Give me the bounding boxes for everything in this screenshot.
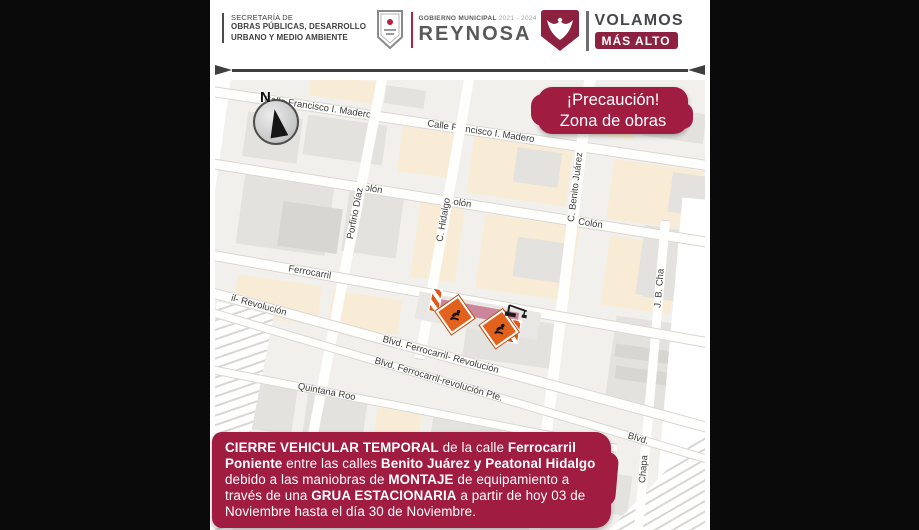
secretaria-title: SECRETARÍA DE OBRAS PÚBLICAS, DESARROLLO… [222, 13, 366, 43]
compass-needle-icon [266, 108, 289, 139]
secretaria-line2: OBRAS PÚBLICAS, DESARROLLO [231, 22, 366, 33]
bird-shield-icon [540, 8, 580, 54]
announcement-card: SECRETARÍA DE OBRAS PÚBLICAS, DESARROLLO… [210, 0, 710, 530]
volamos-logo: VOLAMOS MÁS ALTO [540, 8, 684, 54]
precaution-badge: ¡Precaución! Zona de obras [538, 87, 688, 134]
municipal-shield-icon [375, 9, 405, 51]
closure-notice-banner: CIERRE VEHICULAR TEMPORAL de la calle Fe… [212, 432, 611, 528]
secretaria-line1: SECRETARÍA DE [231, 13, 366, 22]
separator-bar [232, 69, 688, 72]
logo-divider-2 [586, 11, 589, 51]
precaution-line2: Zona de obras [538, 111, 688, 132]
separator-right-cap [688, 65, 705, 75]
map-building [513, 147, 562, 188]
slogan-mas-alto: MÁS ALTO [595, 32, 678, 49]
gobierno-municipal-label: GOBIERNO MUNICIPAL [419, 15, 497, 22]
city-wordmark: REYNOSA [419, 23, 537, 46]
header-separator [215, 64, 705, 76]
precaution-line1: ¡Precaución! [538, 90, 688, 111]
secretaria-line3: URBANO Y MEDIO AMBIENTE [231, 33, 366, 44]
map-building [277, 201, 343, 254]
crane-icon [503, 302, 532, 326]
gobierno-years: 2021 - 2024 [499, 15, 537, 22]
north-indicator: N [253, 99, 299, 145]
page-background: SECRETARÍA DE OBRAS PÚBLICAS, DESARROLLO… [0, 0, 919, 530]
logo-divider [411, 12, 413, 48]
reynosa-logo: GOBIERNO MUNICIPAL 2021 - 2024 REYNOSA [375, 9, 537, 51]
separator-left-cap [215, 65, 232, 75]
north-label: N [260, 89, 271, 106]
slogan-volamos: VOLAMOS [595, 12, 684, 30]
